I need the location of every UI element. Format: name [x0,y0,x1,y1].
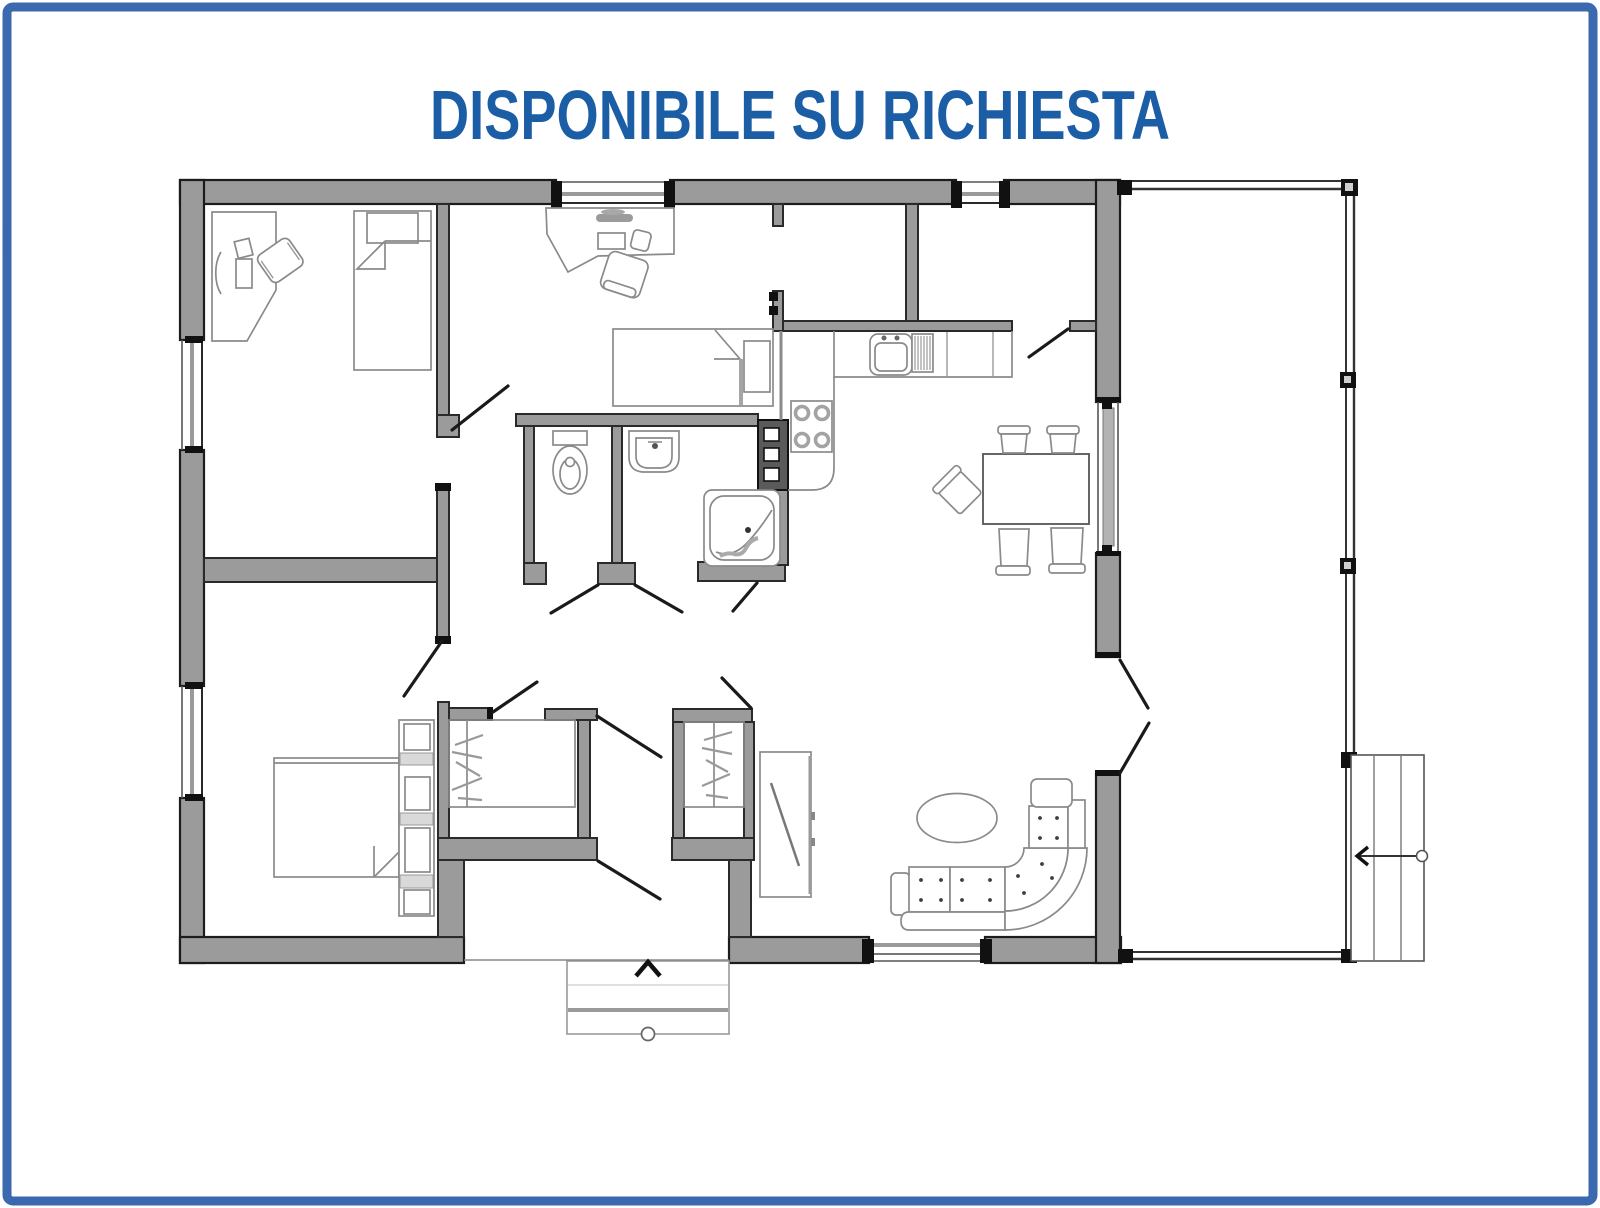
svg-text:DISPONIBILE SU RICHIESTA: DISPONIBILE SU RICHIESTA [430,76,1170,154]
